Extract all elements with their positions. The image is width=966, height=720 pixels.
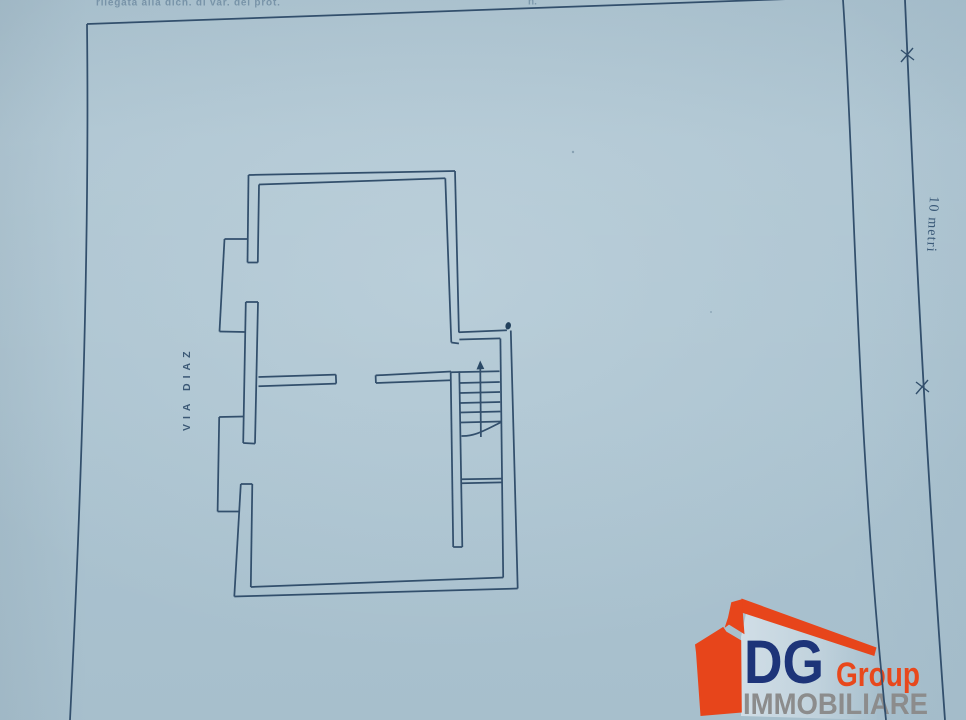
- svg-text:IMMOBILIARE: IMMOBILIARE: [743, 688, 928, 720]
- svg-text:rilegata alla dich. di var. de: rilegata alla dich. di var. del prot.: [96, 0, 281, 9]
- svg-text:n.: n.: [528, 0, 537, 8]
- svg-text:DG: DG: [744, 628, 824, 696]
- svg-text:10 metri: 10 metri: [923, 196, 941, 253]
- svg-text:VIA DIAZ: VIA DIAZ: [181, 346, 193, 431]
